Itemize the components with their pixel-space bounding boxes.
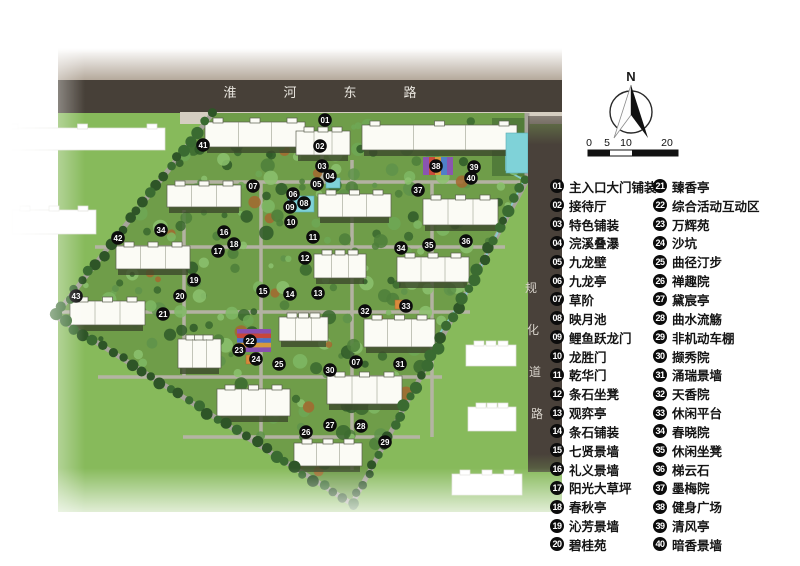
legend-number-badge: 15	[550, 443, 564, 457]
legend-label: 综合活动互动区	[672, 196, 760, 215]
legend-item: 24沙坑	[653, 234, 760, 253]
svg-text:34: 34	[157, 226, 166, 235]
residential-building	[364, 315, 435, 353]
plan-marker-42: 42	[111, 231, 125, 245]
svg-text:04: 04	[326, 172, 335, 181]
legend-label: 条石铺装	[569, 422, 619, 441]
legend-item: 15七贤景墙	[550, 441, 657, 460]
plan-marker-01: 01	[318, 113, 332, 127]
legend-item: 22综合活动互动区	[653, 196, 760, 215]
plan-marker-24: 24	[249, 352, 263, 366]
svg-text:17: 17	[214, 247, 223, 256]
side-road-char: 道	[529, 365, 541, 379]
legend-number-badge: 02	[550, 198, 564, 212]
legend-label: 黛宸亭	[672, 290, 710, 309]
plan-marker-14: 14	[283, 287, 297, 301]
legend-label: 接待厅	[569, 196, 607, 215]
svg-text:05: 05	[313, 180, 322, 189]
legend-label: 龙胜门	[569, 347, 607, 366]
legend-item: 32天香院	[653, 384, 760, 403]
legend-label: 曲径汀步	[672, 252, 722, 271]
legend-label: 非机动车棚	[672, 328, 735, 347]
svg-text:41: 41	[199, 141, 208, 150]
legend-number-badge: 32	[653, 387, 667, 401]
plan-marker-04: 04	[323, 169, 337, 183]
plan-marker-37: 37	[411, 183, 425, 197]
plan-marker-19: 19	[187, 273, 201, 287]
svg-text:06: 06	[289, 190, 298, 199]
legend-number-badge: 37	[653, 481, 667, 495]
plan-marker-09: 09	[283, 200, 297, 214]
svg-text:22: 22	[246, 337, 255, 346]
plan-marker-27: 27	[323, 418, 337, 432]
legend-label: 九龙亭	[569, 271, 607, 290]
legend-label: 天香院	[672, 384, 710, 403]
side-road-char: 规	[525, 280, 537, 295]
svg-text:42: 42	[114, 234, 123, 243]
residential-building	[327, 372, 402, 410]
legend-item: 31涌瑞景墙	[653, 365, 760, 384]
legend-label: 条石坐凳	[569, 384, 619, 403]
residential-building	[116, 242, 190, 275]
legend-label: 曲水流觞	[672, 309, 722, 328]
legend-number-badge: 31	[653, 368, 667, 382]
legend-number-badge: 33	[653, 406, 667, 420]
legend-number-badge: 21	[653, 179, 667, 193]
plan-marker-11: 11	[306, 230, 320, 244]
legend-label: 梯云石	[672, 460, 710, 479]
scale-tick-label: 20	[661, 137, 673, 149]
legend-item: 33休闲平台	[653, 403, 760, 422]
legend-number-badge: 13	[550, 406, 564, 420]
svg-text:38: 38	[432, 162, 441, 171]
legend-item: 34春晓院	[653, 422, 760, 441]
svg-text:09: 09	[286, 203, 295, 212]
plan-marker-25: 25	[272, 357, 286, 371]
legend-item: 39清风亭	[653, 516, 760, 535]
legend-number-badge: 03	[550, 217, 564, 231]
plan-marker-35: 35	[422, 238, 436, 252]
masterplan-page: 淮 河 东 路 规 化 道 路 010203040506070809101112…	[0, 0, 800, 566]
svg-text:21: 21	[159, 310, 168, 319]
legend-number-badge: 28	[653, 311, 667, 325]
svg-text:14: 14	[286, 290, 295, 299]
legend-number-badge: 20	[550, 537, 564, 551]
legend-item: 16礼义景墙	[550, 460, 657, 479]
svg-text:11: 11	[309, 233, 318, 242]
svg-text:16: 16	[220, 228, 229, 237]
legend-item: 38健身广场	[653, 497, 760, 516]
plan-marker-43: 43	[69, 289, 83, 303]
legend-number-badge: 39	[653, 519, 667, 533]
legend-number-badge: 35	[653, 443, 667, 457]
svg-text:10: 10	[287, 218, 296, 227]
svg-text:39: 39	[470, 163, 479, 172]
plan-marker-32: 32	[358, 304, 372, 318]
legend-item: 20碧桂苑	[550, 535, 657, 554]
legend-label: 主入口大门铺装	[569, 177, 657, 196]
svg-text:25: 25	[275, 360, 284, 369]
legend-item: 08映月池	[550, 309, 657, 328]
legend-item: 37墨梅院	[653, 479, 760, 498]
residential-building	[318, 190, 391, 223]
legend-number-badge: 22	[653, 198, 667, 212]
legend-label: 浣溪叠瀑	[569, 233, 619, 252]
residential-building	[423, 195, 498, 231]
legend-number-badge: 12	[550, 387, 564, 401]
legend-number-badge: 08	[550, 311, 564, 325]
svg-text:07: 07	[249, 182, 258, 191]
legend-number-badge: 04	[550, 236, 564, 250]
legend-label: 休闲坐凳	[672, 441, 722, 460]
offsite-building-footprint	[452, 470, 522, 495]
svg-text:31: 31	[396, 360, 405, 369]
north-verge-strip	[58, 48, 562, 81]
legend-label: 阳光大草坪	[569, 478, 632, 497]
residential-building	[167, 181, 241, 213]
plan-marker-22: 22	[243, 334, 257, 348]
scale-bar: 0 5 10 20	[586, 137, 678, 156]
plan-marker-34: 34	[394, 241, 408, 255]
legend-label: 乾华门	[569, 365, 607, 384]
legend-item: 18春秋亭	[550, 497, 657, 516]
legend-number-badge: 17	[550, 481, 564, 495]
legend-number-badge: 19	[550, 519, 564, 533]
svg-text:08: 08	[300, 199, 309, 208]
plan-marker-13: 13	[311, 286, 325, 300]
legend-label: 观弈亭	[569, 403, 607, 422]
side-road-char: 化	[527, 323, 539, 337]
svg-text:43: 43	[72, 292, 81, 301]
plan-marker-36: 36	[459, 234, 473, 248]
legend-item: 27黛宸亭	[653, 290, 760, 309]
legend-number-badge: 24	[653, 236, 667, 250]
svg-text:40: 40	[467, 174, 476, 183]
legend-number-badge: 27	[653, 292, 667, 306]
svg-text:23: 23	[235, 346, 244, 355]
svg-text:24: 24	[252, 355, 261, 364]
legend-item: 28曲水流觞	[653, 309, 760, 328]
legend-number-badge: 09	[550, 330, 564, 344]
residential-building	[397, 253, 469, 288]
legend-number-badge: 18	[550, 500, 564, 514]
road-name-char: 东	[343, 85, 356, 100]
offsite-building-footprint	[466, 341, 516, 366]
legend-number-badge: 40	[653, 537, 667, 551]
residential-building	[362, 121, 517, 156]
legend-number-badge: 36	[653, 462, 667, 476]
legend-label: 沙坑	[672, 233, 697, 252]
svg-text:28: 28	[357, 422, 366, 431]
svg-text:35: 35	[425, 241, 434, 250]
svg-text:12: 12	[301, 254, 310, 263]
svg-text:33: 33	[402, 302, 411, 311]
legend-item: 01主入口大门铺装	[550, 177, 657, 196]
legend-item: 11乾华门	[550, 365, 657, 384]
legend-number-badge: 06	[550, 274, 564, 288]
plan-marker-26: 26	[299, 425, 313, 439]
road-name-char: 河	[283, 85, 296, 100]
legend-label: 沁芳景墙	[569, 516, 619, 535]
residential-building	[70, 297, 145, 331]
legend-number-badge: 29	[653, 330, 667, 344]
svg-text:19: 19	[190, 276, 199, 285]
legend-item: 04浣溪叠瀑	[550, 234, 657, 253]
offsite-building-footprint	[12, 206, 96, 234]
legend-item: 29非机动车棚	[653, 328, 760, 347]
legend-label: 清风亭	[672, 516, 710, 535]
legend-label: 七贤景墙	[569, 441, 619, 460]
legend-label: 健身广场	[672, 497, 722, 516]
residential-building	[217, 385, 290, 422]
svg-text:18: 18	[230, 240, 239, 249]
road-name-char: 路	[403, 85, 416, 100]
offsite-building-footprint	[468, 403, 516, 431]
legend-number-badge: 25	[653, 255, 667, 269]
plan-marker-10: 10	[284, 215, 298, 229]
residential-building	[178, 335, 221, 374]
plan-marker-40: 40	[464, 171, 478, 185]
offsite-building-footprint	[0, 124, 165, 150]
legend-item: 40暗香景墙	[653, 535, 760, 554]
svg-text:03: 03	[318, 162, 327, 171]
plan-marker-30: 30	[323, 363, 337, 377]
plan-marker-05: 05	[310, 177, 324, 191]
legend-label: 特色铺装	[569, 215, 619, 234]
svg-text:32: 32	[361, 307, 370, 316]
legend-item: 12条石坐凳	[550, 384, 657, 403]
plan-marker-12: 12	[298, 251, 312, 265]
svg-text:02: 02	[316, 142, 325, 151]
legend-label: 春晓院	[672, 422, 710, 441]
scale-tick-label: 10	[620, 137, 632, 149]
legend-item: 36梯云石	[653, 460, 760, 479]
side-road-char: 路	[531, 406, 543, 421]
svg-text:01: 01	[321, 116, 330, 125]
legend-number-badge: 30	[653, 349, 667, 363]
legend-number-badge: 16	[550, 462, 564, 476]
plan-marker-34: 34	[154, 223, 168, 237]
svg-text:36: 36	[462, 237, 471, 246]
plan-marker-06: 06	[286, 187, 300, 201]
plan-marker-41: 41	[196, 138, 210, 152]
legend-number-badge: 23	[653, 217, 667, 231]
legend-label: 春秋亭	[569, 497, 607, 516]
svg-text:20: 20	[176, 292, 185, 301]
legend-item: 05九龙壁	[550, 252, 657, 271]
water-feature	[506, 133, 528, 173]
svg-text:13: 13	[314, 289, 323, 298]
huaihe-east-road	[58, 80, 562, 113]
residential-building	[294, 439, 362, 472]
legend-label: 涌瑞景墙	[672, 365, 722, 384]
svg-text:26: 26	[302, 428, 311, 437]
legend-item: 14条石铺装	[550, 422, 657, 441]
legend-number-badge: 38	[653, 500, 667, 514]
legend-item: 02接待厅	[550, 196, 657, 215]
svg-text:07: 07	[352, 358, 361, 367]
legend-column-1: 01主入口大门铺装02接待厅03特色铺装04浣溪叠瀑05九龙壁06九龙亭07草阶…	[550, 177, 657, 554]
legend-item: 10龙胜门	[550, 347, 657, 366]
legend-number-badge: 07	[550, 292, 564, 306]
plan-marker-18: 18	[227, 237, 241, 251]
plan-marker-07: 07	[246, 179, 260, 193]
legend-label: 臻香亭	[672, 177, 710, 196]
plan-marker-38: 38	[429, 159, 443, 173]
plan-marker-20: 20	[173, 289, 187, 303]
plan-marker-23: 23	[232, 343, 246, 357]
north-arrow-icon: N	[610, 69, 652, 138]
plan-marker-31: 31	[393, 357, 407, 371]
plan-marker-08: 08	[297, 196, 311, 210]
legend-label: 墨梅院	[672, 478, 710, 497]
plan-marker-28: 28	[354, 419, 368, 433]
legend-label: 撷秀院	[672, 347, 710, 366]
legend-number-badge: 01	[550, 179, 564, 193]
legend-item: 25曲径汀步	[653, 252, 760, 271]
legend-item: 26禅趣院	[653, 271, 760, 290]
legend-label: 万辉苑	[672, 215, 710, 234]
legend-item: 35休闲坐凳	[653, 441, 760, 460]
legend-number-badge: 14	[550, 424, 564, 438]
legend-number-badge: 26	[653, 274, 667, 288]
legend-item: 21臻香亭	[653, 177, 760, 196]
plan-marker-29: 29	[378, 435, 392, 449]
legend-number-badge: 34	[653, 424, 667, 438]
legend-label: 禅趣院	[672, 271, 710, 290]
legend-item: 07草阶	[550, 290, 657, 309]
legend-item: 17阳光大草坪	[550, 479, 657, 498]
legend-number-badge: 11	[550, 368, 564, 382]
legend-item: 06九龙亭	[550, 271, 657, 290]
legend-label: 礼义景墙	[569, 460, 619, 479]
legend-item: 30撷秀院	[653, 347, 760, 366]
residential-building	[205, 118, 305, 153]
legend-item: 03特色铺装	[550, 215, 657, 234]
svg-text:30: 30	[326, 366, 335, 375]
plan-marker-17: 17	[211, 244, 225, 258]
plan-marker-21: 21	[156, 307, 170, 321]
residential-building	[314, 250, 366, 284]
legend-label: 暗香景墙	[672, 535, 722, 554]
road-name-char: 淮	[223, 85, 236, 100]
svg-text:15: 15	[259, 287, 268, 296]
svg-text:37: 37	[414, 186, 423, 195]
legend-label: 鲤鱼跃龙门	[569, 328, 632, 347]
plan-marker-02: 02	[313, 139, 327, 153]
legend-number-badge: 05	[550, 255, 564, 269]
legend-item: 23万辉苑	[653, 215, 760, 234]
plan-marker-33: 33	[399, 299, 413, 313]
legend-label: 九龙壁	[569, 252, 607, 271]
scale-tick-label: 0	[586, 137, 592, 149]
legend-item: 13观弈亭	[550, 403, 657, 422]
legend-number-badge: 10	[550, 349, 564, 363]
scale-tick-label: 5	[604, 137, 610, 149]
legend-label: 草阶	[569, 290, 594, 309]
legend-column-2: 21臻香亭22综合活动互动区23万辉苑24沙坑25曲径汀步26禅趣院27黛宸亭2…	[653, 177, 760, 554]
svg-text:29: 29	[381, 438, 390, 447]
svg-text:27: 27	[326, 421, 335, 430]
legend-label: 映月池	[569, 309, 607, 328]
legend-label: 休闲平台	[672, 403, 722, 422]
legend-label: 碧桂苑	[569, 535, 607, 554]
legend-item: 19沁芳景墙	[550, 516, 657, 535]
plan-marker-15: 15	[256, 284, 270, 298]
north-label: N	[626, 69, 635, 84]
svg-text:34: 34	[397, 244, 406, 253]
plan-marker-07: 07	[349, 355, 363, 369]
residential-building	[279, 313, 328, 347]
legend-item: 09鲤鱼跃龙门	[550, 328, 657, 347]
plan-marker-16: 16	[217, 225, 231, 239]
